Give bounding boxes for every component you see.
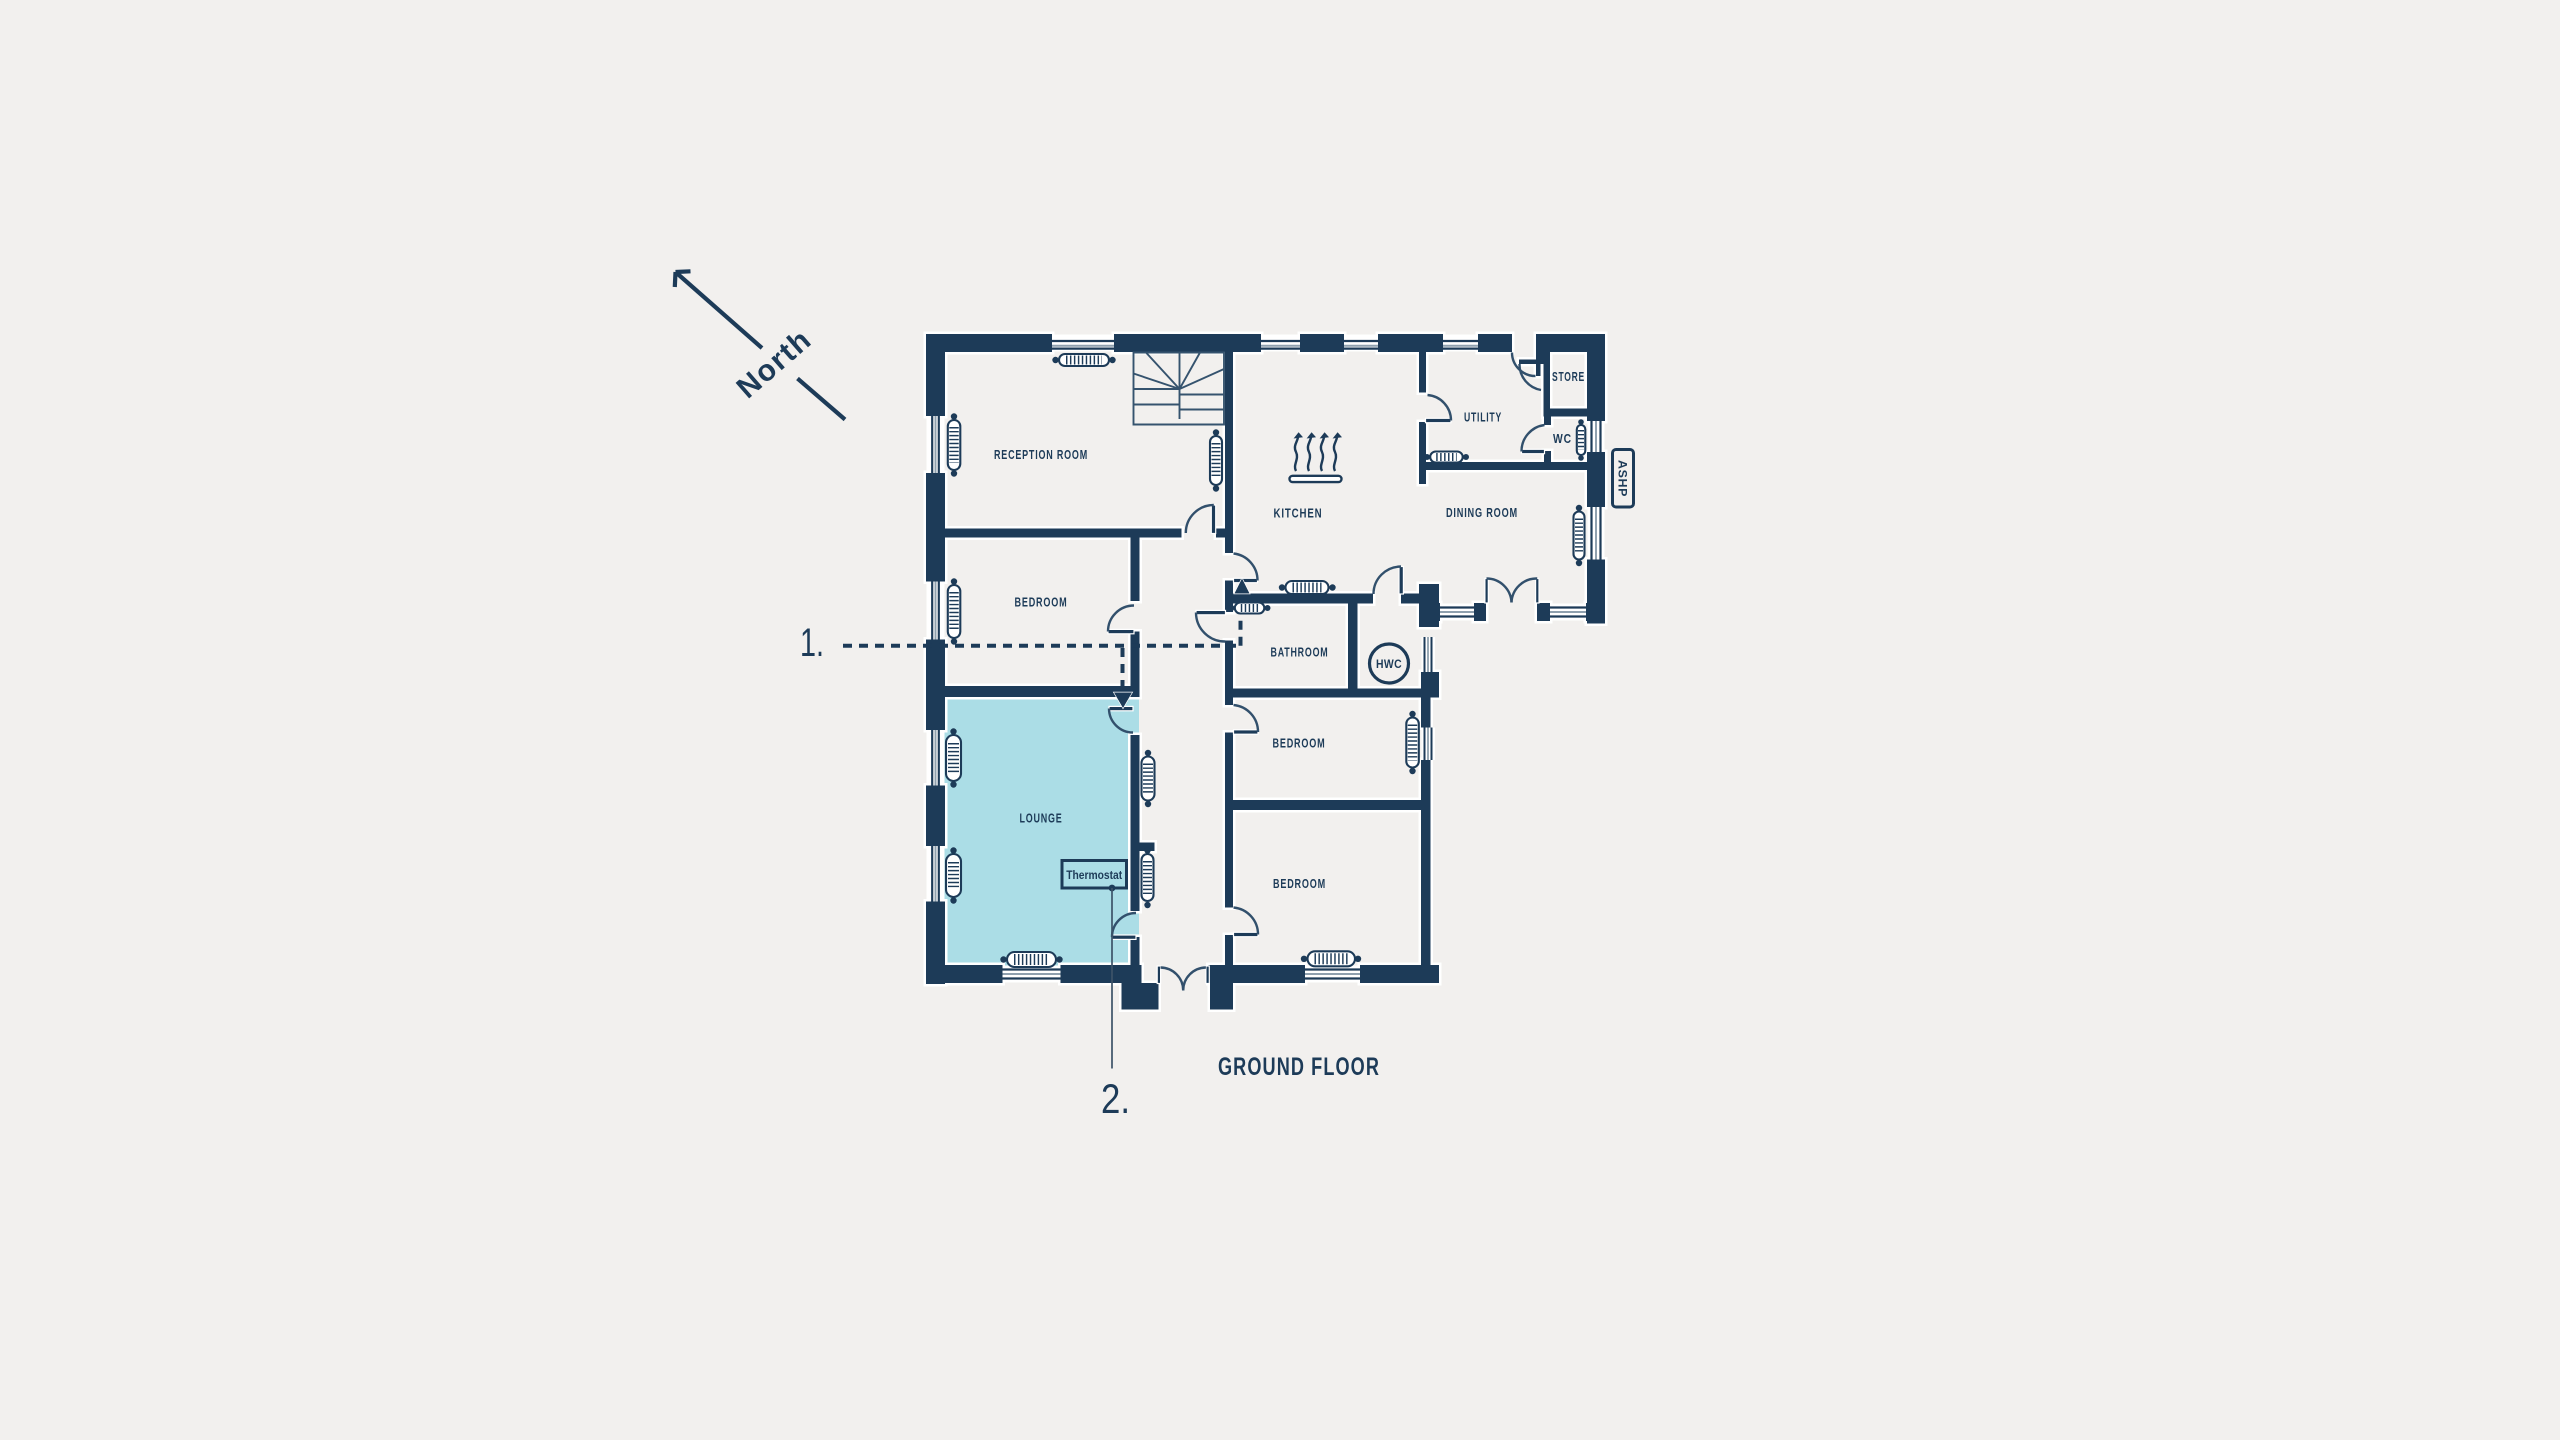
svg-text:Thermostat: Thermostat [1066, 868, 1122, 882]
svg-text:STORE: STORE [1552, 370, 1585, 384]
svg-text:WC: WC [1553, 432, 1572, 446]
svg-text:BEDROOM: BEDROOM [1273, 737, 1326, 751]
svg-text:1.: 1. [800, 621, 824, 665]
svg-text:DINING ROOM: DINING ROOM [1446, 506, 1518, 520]
svg-text:BEDROOM: BEDROOM [1273, 877, 1326, 891]
svg-text:GROUND FLOOR: GROUND FLOOR [1218, 1053, 1380, 1081]
svg-text:BEDROOM: BEDROOM [1015, 596, 1068, 610]
svg-text:RECEPTION ROOM: RECEPTION ROOM [994, 448, 1088, 462]
svg-text:UTILITY: UTILITY [1464, 411, 1502, 425]
svg-text:LOUNGE: LOUNGE [1020, 812, 1063, 826]
svg-text:2.: 2. [1101, 1075, 1130, 1122]
svg-text:ASHP: ASHP [1616, 460, 1628, 497]
svg-text:BATHROOM: BATHROOM [1271, 646, 1329, 660]
svg-text:KITCHEN: KITCHEN [1274, 507, 1323, 521]
svg-text:HWC: HWC [1376, 659, 1402, 671]
